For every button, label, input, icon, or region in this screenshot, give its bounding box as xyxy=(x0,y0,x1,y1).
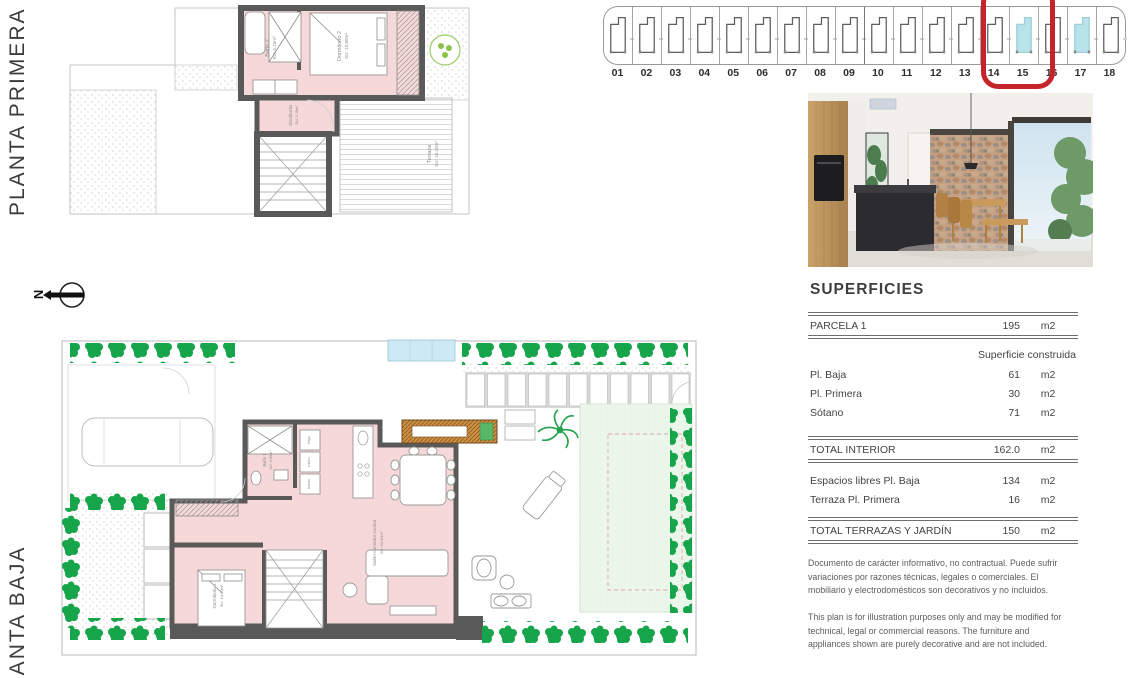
unit-cell[interactable] xyxy=(661,7,690,64)
room-area: SU: 33.00m² xyxy=(379,531,384,554)
row-label: TOTAL TERRAZAS Y JARDÍN xyxy=(810,525,962,537)
room-area: SU: 4.15m² xyxy=(272,36,277,60)
unit-cell[interactable] xyxy=(980,7,1009,64)
appliance-label: horno xyxy=(307,479,311,489)
room-label: Dormitorio 2 xyxy=(337,31,343,61)
unit-number[interactable]: 05 xyxy=(719,67,748,79)
room-label: Baño 1 xyxy=(262,453,267,467)
table-row-total: TOTAL INTERIOR 162.0 m2 xyxy=(808,440,1078,459)
row-unit: m2 xyxy=(1020,444,1076,456)
row-label: Terraza Pl. Primera xyxy=(810,494,962,506)
driveway xyxy=(68,365,215,500)
unit-number[interactable]: 01 xyxy=(603,67,632,79)
table-row: Pl. Primera 30 m2 xyxy=(808,384,1078,403)
unit-numbers-row: 01 02 03 04 05 06 07 08 09 10 11 12 13 1… xyxy=(603,67,1124,79)
row-value: 30 xyxy=(962,388,1020,400)
unit-cell[interactable] xyxy=(632,7,661,64)
row-unit: m2 xyxy=(1020,475,1076,487)
garden-furniture xyxy=(472,470,568,608)
row-value: 61 xyxy=(962,369,1020,381)
unit-cell[interactable] xyxy=(1009,7,1038,64)
unit-number[interactable]: 18 xyxy=(1095,67,1124,79)
unit-cell[interactable] xyxy=(893,7,922,64)
unit-cell[interactable] xyxy=(1038,7,1067,64)
unit-number[interactable]: 12 xyxy=(921,67,950,79)
planta-baja-floorplan: Baño 1 SU: 3.90m² Dormitorio 1 SU: 10.90… xyxy=(60,338,700,662)
unit-cell[interactable] xyxy=(864,7,893,64)
unit-number[interactable]: 15 xyxy=(1008,67,1037,79)
table-row: Sótano 71 m2 xyxy=(808,403,1078,422)
unit-number[interactable]: 04 xyxy=(690,67,719,79)
room-label: Baño 2 xyxy=(265,39,271,56)
bbq-counter xyxy=(402,420,497,443)
unit-number[interactable]: 13 xyxy=(950,67,979,79)
disclaimer-en: This plan is for illustration purposes o… xyxy=(808,611,1072,652)
unit-number[interactable]: 03 xyxy=(661,67,690,79)
room-label: Terraza xyxy=(427,144,433,163)
unit-cell[interactable] xyxy=(604,7,632,64)
unit-cell[interactable] xyxy=(835,7,864,64)
deck-pavers xyxy=(465,372,691,408)
tree-symbol-icon xyxy=(430,35,460,65)
superficies-title: SUPERFICIES xyxy=(810,281,1078,299)
row-label: Espacios libres Pl. Baja xyxy=(810,475,962,487)
room-area: SU: 3.90m² xyxy=(269,450,273,470)
room-label: Distribuidor xyxy=(288,104,293,126)
outdoor-table xyxy=(505,410,535,440)
row-label: Pl. Primera xyxy=(810,388,962,400)
room-area: SU: 10.90m² xyxy=(219,584,224,607)
row-value: 16 xyxy=(962,494,1020,506)
unit-number[interactable]: 08 xyxy=(806,67,835,79)
north-arrow-icon: N xyxy=(34,278,94,316)
north-letter: N xyxy=(31,290,46,299)
wardrobe2 xyxy=(397,11,419,95)
kitchen-counter xyxy=(353,426,373,498)
row-unit: m2 xyxy=(1020,369,1076,381)
row-label: PARCELA 1 xyxy=(810,320,962,332)
unit-cell[interactable] xyxy=(806,7,835,64)
interior-photo xyxy=(808,93,1093,267)
row-value: 195 xyxy=(962,320,1020,332)
unit-cell[interactable] xyxy=(1067,7,1096,64)
unit-cell[interactable] xyxy=(690,7,719,64)
row-label: Pl. Baja xyxy=(810,369,962,381)
planta-primera-floorplan: Baño 2 SU: 4.15m² Dormitorio 2 SU: 10.80… xyxy=(55,2,490,230)
room-area: SU: 2.15m² xyxy=(295,105,299,125)
unit-cell[interactable] xyxy=(922,7,951,64)
rule xyxy=(808,540,1078,544)
unit-cell[interactable] xyxy=(719,7,748,64)
room-area: SU: 10.80m² xyxy=(344,33,349,59)
row-unit: m2 xyxy=(1020,320,1076,332)
planta-baja-title: PLANTA BAJA xyxy=(6,545,30,678)
disclaimer-es: Documento de carácter informativo, no co… xyxy=(808,557,1072,598)
room-label: Dormitorio 1 xyxy=(212,583,217,608)
unit-cell[interactable] xyxy=(1096,7,1125,64)
appliance-label: micro xyxy=(307,457,311,466)
patio-sofa xyxy=(144,513,170,619)
unit-number[interactable]: 07 xyxy=(777,67,806,79)
unit-number[interactable]: 14 xyxy=(979,67,1008,79)
table-row: Espacios libres Pl. Baja 134 m2 xyxy=(808,471,1078,490)
planta-primera-title: PLANTA PRIMERA xyxy=(6,38,30,216)
unit-number[interactable]: 11 xyxy=(892,67,921,79)
superficies-panel: SUPERFICIES PARCELA 1 195 m2 Superficie … xyxy=(808,281,1078,661)
palm-tree-icon xyxy=(538,410,578,448)
row-value: 162.0 xyxy=(962,444,1020,456)
unit-number[interactable]: 17 xyxy=(1066,67,1095,79)
appliance-label: frigo xyxy=(307,436,311,443)
table-row: PARCELA 1 195 m2 xyxy=(808,316,1078,335)
unit-number[interactable]: 09 xyxy=(835,67,864,79)
stairs-lower xyxy=(266,550,323,628)
row-value: 134 xyxy=(962,475,1020,487)
brochure-page: PLANTA PRIMERA PLANTA BAJA N xyxy=(0,0,1130,678)
room-area: SU: 16.20m² xyxy=(434,141,439,167)
table-row-total: TOTAL TERRAZAS Y JARDÍN 150 m2 xyxy=(808,521,1078,540)
column-header: Superficie construida xyxy=(808,339,1078,365)
row-unit: m2 xyxy=(1020,388,1076,400)
pool xyxy=(388,340,455,361)
row-unit: m2 xyxy=(1020,494,1076,506)
table-row: Terraza Pl. Primera 16 m2 xyxy=(808,490,1078,509)
row-unit: m2 xyxy=(1020,525,1076,537)
entry-wardrobe xyxy=(176,500,238,516)
stairs-upper xyxy=(257,134,329,214)
unit-number[interactable]: 16 xyxy=(1037,67,1066,79)
unit-cell[interactable] xyxy=(951,7,980,64)
unit-number[interactable]: 02 xyxy=(632,67,661,79)
room-label: Salón-comedor-cocina xyxy=(372,520,377,566)
row-label: Sótano xyxy=(810,407,962,419)
unit-cell[interactable] xyxy=(748,7,777,64)
row-value: 150 xyxy=(962,525,1020,537)
site-plan-strip xyxy=(603,6,1126,65)
unit-number[interactable]: 06 xyxy=(748,67,777,79)
row-value: 71 xyxy=(962,407,1020,419)
row-label: TOTAL INTERIOR xyxy=(810,444,962,456)
unit-cell[interactable] xyxy=(777,7,806,64)
unit-number[interactable]: 10 xyxy=(863,67,892,79)
row-unit: m2 xyxy=(1020,407,1076,419)
table-row: Pl. Baja 61 m2 xyxy=(808,365,1078,384)
